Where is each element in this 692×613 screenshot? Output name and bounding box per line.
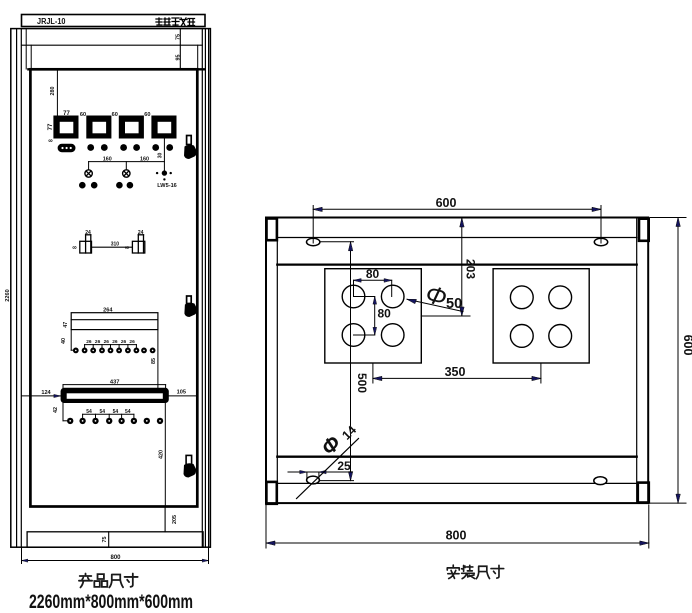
- svg-text:26: 26: [121, 339, 127, 345]
- svg-text:437: 437: [110, 379, 120, 385]
- svg-text:77: 77: [63, 111, 70, 117]
- svg-text:50: 50: [446, 296, 462, 312]
- svg-text:8: 8: [48, 139, 54, 142]
- svg-text:420: 420: [159, 450, 165, 459]
- svg-text:24: 24: [138, 230, 144, 236]
- svg-text:54: 54: [100, 409, 106, 415]
- svg-text:42: 42: [53, 407, 59, 413]
- svg-text:77: 77: [48, 123, 54, 130]
- svg-text:800: 800: [110, 555, 121, 561]
- svg-text:60: 60: [112, 112, 118, 118]
- svg-text:30: 30: [158, 153, 164, 159]
- svg-text:2260: 2260: [5, 289, 11, 301]
- svg-text:80: 80: [378, 307, 392, 321]
- svg-text:26: 26: [112, 339, 118, 345]
- svg-text:54: 54: [125, 409, 131, 415]
- svg-text:2260mm*800mm*600mm: 2260mm*800mm*600mm: [29, 591, 193, 613]
- svg-text:LW5-16: LW5-16: [157, 183, 177, 189]
- svg-text:75: 75: [176, 34, 182, 40]
- svg-text:600: 600: [681, 335, 692, 356]
- svg-text:24: 24: [85, 230, 91, 236]
- svg-text:60: 60: [80, 112, 86, 118]
- svg-text:26: 26: [86, 339, 92, 345]
- svg-text:25: 25: [337, 459, 351, 473]
- svg-text:26: 26: [129, 339, 135, 345]
- svg-text:8: 8: [72, 246, 78, 249]
- svg-text:54: 54: [113, 409, 119, 415]
- svg-text:203: 203: [464, 259, 478, 279]
- svg-text:350: 350: [445, 365, 466, 379]
- svg-text:95: 95: [176, 55, 182, 61]
- svg-text:600: 600: [436, 196, 457, 210]
- svg-text:264: 264: [103, 308, 113, 314]
- svg-text:105: 105: [177, 390, 186, 396]
- svg-text:160: 160: [103, 156, 112, 162]
- svg-text:500: 500: [355, 373, 369, 393]
- svg-text:40: 40: [61, 338, 67, 344]
- svg-text:800: 800: [446, 529, 467, 543]
- svg-text:26: 26: [104, 339, 110, 345]
- svg-text:60: 60: [144, 112, 150, 118]
- svg-text:26: 26: [95, 339, 101, 345]
- svg-text:280: 280: [50, 87, 56, 96]
- svg-text:85: 85: [151, 358, 157, 364]
- svg-text:124: 124: [41, 390, 51, 396]
- svg-text:160: 160: [140, 156, 149, 162]
- svg-text:JRJL-10: JRJL-10: [37, 17, 66, 26]
- svg-text:80: 80: [366, 267, 380, 281]
- svg-text:54: 54: [86, 409, 92, 415]
- svg-text:310: 310: [111, 241, 120, 247]
- svg-text:75: 75: [102, 537, 108, 543]
- svg-text:47: 47: [63, 322, 69, 328]
- svg-text:205: 205: [172, 515, 178, 524]
